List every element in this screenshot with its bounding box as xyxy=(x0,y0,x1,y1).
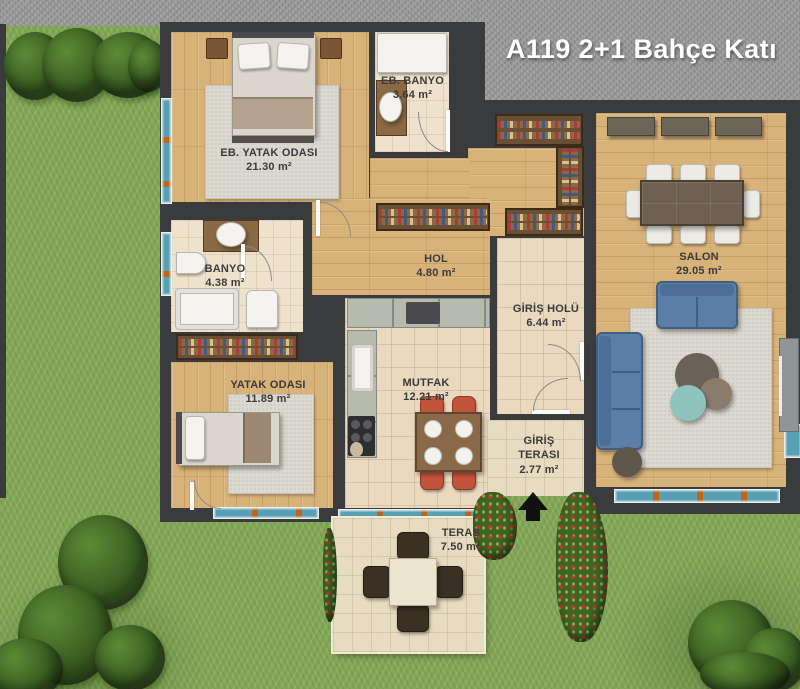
burner xyxy=(363,420,372,429)
room-label-teras: TERAS 7.50 m² xyxy=(424,526,480,555)
sofa-cushion-line xyxy=(612,408,640,410)
nightstand xyxy=(206,38,228,59)
room-name: BANYO xyxy=(175,262,275,276)
burner xyxy=(351,420,360,429)
dining-chair xyxy=(646,225,672,244)
room-name: HOL xyxy=(386,252,486,266)
kitchen-sink xyxy=(351,344,374,392)
shoe-rack-hall xyxy=(376,203,490,231)
pillow xyxy=(276,42,310,70)
room-area: 4.38 m² xyxy=(175,276,275,290)
burner xyxy=(351,433,360,442)
dining-chair xyxy=(714,225,740,244)
window-bath xyxy=(161,232,172,296)
arrow-head xyxy=(518,492,548,510)
double-bed xyxy=(232,34,316,136)
nightstand xyxy=(320,38,342,59)
bed-headboard xyxy=(176,412,182,464)
rack-shelf xyxy=(179,339,295,346)
rack-shelf xyxy=(508,214,580,221)
dining-table xyxy=(640,180,744,226)
bed-headboard xyxy=(232,32,314,38)
plan-title: A119 2+1 Bahçe Katı xyxy=(506,34,777,65)
teras-table xyxy=(389,558,437,606)
teras-chair xyxy=(435,566,463,598)
bathtub xyxy=(175,288,239,330)
room-label-giris-terasi: GİRİŞ TERASI 2.77 m² xyxy=(506,434,572,477)
pillow xyxy=(237,42,271,70)
room-name: EB. BANYO xyxy=(365,74,460,88)
flower-bush-entrance-right xyxy=(556,492,608,642)
tv-unit xyxy=(779,338,799,432)
room-name: GİRİŞ HOLÜ xyxy=(496,302,596,316)
arrow-stem xyxy=(526,510,540,521)
bowl xyxy=(350,442,363,457)
closet-shelf xyxy=(498,121,580,128)
closet-shelf xyxy=(562,149,569,205)
floor-plan: EB. YATAK ODASI 21.30 m² EB. BANYO 3.64 … xyxy=(0,0,800,689)
tv-screen xyxy=(779,356,782,416)
room-label-giris-holu: GİRİŞ HOLÜ 6.44 m² xyxy=(496,302,596,331)
rack-shelf xyxy=(508,223,580,230)
teras-chair xyxy=(363,566,391,598)
teras-chair xyxy=(397,604,429,632)
room-name: YATAK ODASI xyxy=(218,378,318,392)
sofa-two-seat xyxy=(656,281,738,329)
wardrobe-closet-horizontal xyxy=(495,114,583,146)
sofa-backrest xyxy=(660,284,734,296)
room-name: TERAS xyxy=(424,526,480,540)
single-bed xyxy=(178,412,280,466)
room-name: EB. YATAK ODASI xyxy=(194,146,344,160)
room-label-eb-yatak-odasi: EB. YATAK ODASI 21.30 m² xyxy=(194,146,344,175)
room-label-banyo: BANYO 4.38 m² xyxy=(175,262,275,291)
window-bedroom xyxy=(213,507,319,519)
ottoman xyxy=(612,447,642,477)
floor-hall-upper xyxy=(370,158,470,202)
tree-bottom-right xyxy=(700,652,790,689)
sideboard xyxy=(715,117,762,136)
room-name: SALON xyxy=(649,250,749,264)
plate xyxy=(455,420,473,438)
plate xyxy=(455,447,473,465)
room-area: 11.89 m² xyxy=(218,392,318,406)
room-area: 12.21 m² xyxy=(376,390,476,404)
room-area: 2.77 m² xyxy=(506,463,572,477)
bed-bench xyxy=(232,136,314,143)
room-name: MUTFAK xyxy=(376,376,476,390)
bed-blanket xyxy=(233,97,313,129)
room-label-salon: SALON 29.05 m² xyxy=(649,250,749,279)
sideboard xyxy=(661,117,709,136)
wardrobe-closet-vertical xyxy=(556,146,584,208)
room-label-hol: HOL 4.80 m² xyxy=(386,252,486,281)
rack-shelf xyxy=(379,209,487,216)
sofa-backrest xyxy=(599,336,611,446)
sofa-cushion-line xyxy=(612,371,640,373)
shower-tray xyxy=(377,33,447,73)
burner xyxy=(363,433,372,442)
room-area: 4.80 m² xyxy=(386,266,486,280)
room-area: 6.44 m² xyxy=(496,316,596,330)
sideboard xyxy=(607,117,655,136)
room-area: 7.50 m² xyxy=(424,540,480,554)
shoe-rack-entry xyxy=(505,208,583,236)
kitchen-table xyxy=(415,412,482,472)
room-name: GİRİŞ TERASI xyxy=(506,434,572,463)
room-label-eb-banyo: EB. BANYO 3.64 m² xyxy=(365,74,460,103)
room-area: 21.30 m² xyxy=(194,160,344,174)
entrance-arrow-icon xyxy=(518,492,548,522)
room-label-mutfak: MUTFAK 12.21 m² xyxy=(376,376,476,405)
dining-chair xyxy=(680,225,706,244)
bed-blanket xyxy=(243,413,271,463)
washing-machine xyxy=(246,290,278,328)
closet-shelf xyxy=(571,149,578,205)
rack-shelf xyxy=(379,218,487,225)
plate xyxy=(424,447,442,465)
room-area: 29.05 m² xyxy=(649,264,749,278)
flower-strip-teras-left xyxy=(323,528,337,622)
pillow xyxy=(185,416,205,460)
room-area: 3.64 m² xyxy=(365,88,460,102)
dining-chair xyxy=(743,190,760,218)
sofa-cushion-line xyxy=(696,297,698,327)
garden-fence xyxy=(0,24,6,498)
rack-shelf xyxy=(179,348,295,355)
closet-shelf xyxy=(498,132,580,139)
coffee-table-teal xyxy=(670,385,706,421)
door-leaf-bedroom xyxy=(190,482,194,510)
sofa-three-seat xyxy=(596,332,643,450)
kitchen-appliance-block xyxy=(406,302,440,324)
window-salon-bottom xyxy=(614,489,780,503)
window-master-bedroom xyxy=(161,98,172,204)
tree-bottom-left xyxy=(95,625,165,689)
room-label-yatak-odasi: YATAK ODASI 11.89 m² xyxy=(218,378,318,407)
shoe-rack-bedroom xyxy=(176,334,298,360)
stove xyxy=(348,416,375,456)
plate xyxy=(424,420,442,438)
